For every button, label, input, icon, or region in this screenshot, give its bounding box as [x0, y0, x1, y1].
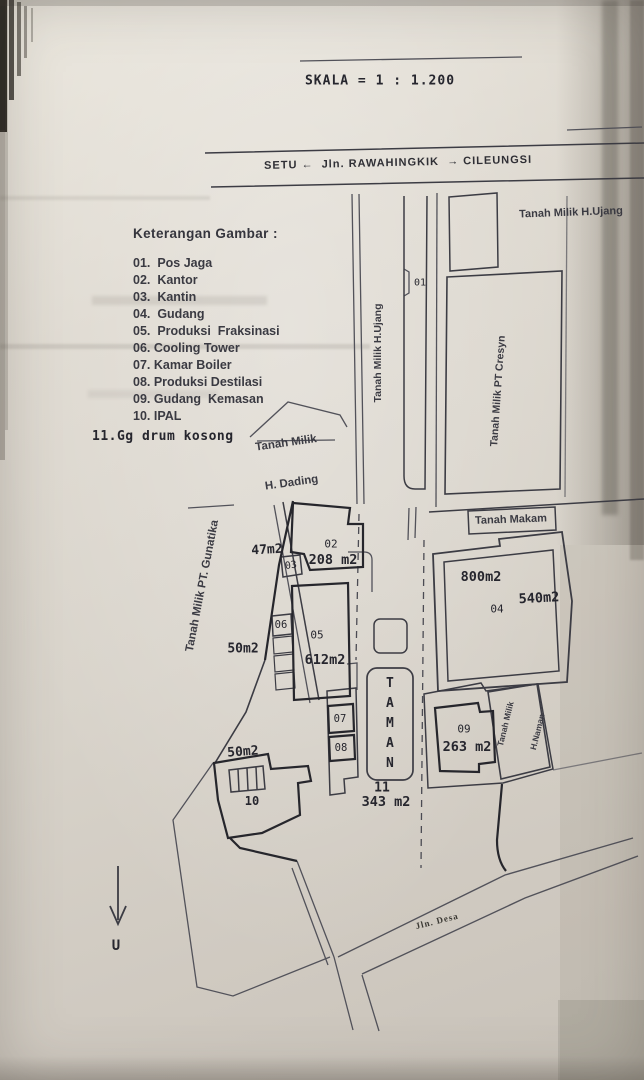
area-50m2-lower: 50m2 [227, 744, 259, 761]
inner-road-edge [436, 193, 437, 507]
right-parcel-edge [565, 196, 567, 497]
legend-item-07: 07. Kamar Boiler [133, 357, 280, 374]
jln-desa-upper [338, 838, 633, 957]
arrow-left-icon: ← [301, 158, 313, 170]
parcel-07-number: 07 [334, 713, 347, 725]
area-47m2: 47m2 [251, 543, 283, 560]
area-343m2: 343 m2 [362, 795, 411, 811]
small-square-building [374, 619, 407, 653]
south-road-vertical [334, 957, 379, 1031]
neighbor-ujang-strip: Tanah Milik H.Ujang [372, 304, 384, 403]
area-263m2: 263 m2 [443, 740, 492, 756]
area-540m2: 540m2 [518, 590, 559, 608]
cresyn-north-rect [449, 193, 498, 271]
parcel-06-number: 06 [275, 619, 288, 631]
naman-line1: Tanah Milik [495, 701, 517, 748]
dash-west-of-taman [356, 514, 359, 660]
ipal-cells [229, 766, 265, 792]
dading-line1: Tanah Milik [255, 434, 318, 456]
legend-item-11: 11.Gg drum kosong [92, 430, 234, 445]
road-town-right: CILEUNGSI [463, 153, 532, 167]
area-50m2-upper: 50m2 [227, 643, 258, 658]
top-road-label: SETU ← Jln. RAWAHINGKIK → CILEUNGSI [247, 141, 532, 185]
legend-title: Keterangan Gambar : [133, 226, 280, 241]
taman-label: TAMAN [382, 676, 397, 776]
ujang-strip-boundary [352, 194, 364, 504]
gunatika-top-line [188, 505, 234, 508]
parcel-05-number: 05 [310, 630, 323, 643]
south-road-edge [292, 861, 334, 965]
neighbor-makam: Tanah Makam [475, 512, 547, 527]
parcel-04-number: 04 [490, 604, 503, 617]
area-208m2: 208 m2 [309, 553, 358, 569]
legend-item-03: 03. Kantin [133, 289, 280, 306]
parcel-03-number: 03 [284, 559, 298, 572]
makam-north-boundary [429, 499, 644, 512]
dading-line2: H. Dading [260, 473, 323, 495]
parcel-02-number: 02 [324, 539, 337, 552]
legend-item-08: 08. Produksi Destilasi [133, 374, 280, 391]
thin-lines [173, 57, 642, 1031]
top-right-edge-line [567, 127, 642, 130]
scale-text: SKALA = 1 : 1.200 [305, 75, 455, 90]
area-800m2: 800m2 [461, 570, 502, 586]
legend: Keterangan Gambar : 01. Pos Jaga 02. Kan… [133, 226, 280, 425]
parcel-10-number: 10 [245, 795, 259, 809]
naman-line2: H.Naman [527, 709, 549, 756]
road-connectors [408, 507, 416, 540]
parcel-01-number: 01 [414, 277, 426, 289]
cooling-cells [273, 636, 295, 690]
jln-desa-lower [362, 856, 638, 974]
parcel-09-number: 09 [457, 724, 470, 737]
legend-item-01: 01. Pos Jaga [133, 255, 280, 272]
south-heavy-segment [230, 838, 297, 861]
scanned-site-plan-page: SKALA = 1 : 1.200 SETU ← Jln. RAWAHINGKI… [0, 0, 644, 1080]
legend-item-02: 02. Kantor [133, 272, 280, 289]
arrow-right-icon: → [447, 155, 459, 167]
east-boundary [553, 753, 642, 770]
legend-item-06: 06. Cooling Tower [133, 340, 280, 357]
area-612m2: 612m2 [305, 653, 346, 669]
scale-underline [300, 57, 522, 61]
southeast-heavy-boundary [497, 784, 506, 871]
legend-item-05: 05. Produksi Fraksinasi [133, 323, 280, 340]
parcel-08-number: 08 [335, 742, 348, 754]
north-arrow-icon [110, 866, 126, 924]
legend-item-04: 04. Gudang [133, 306, 280, 323]
road-town-left: SETU [264, 159, 298, 172]
north-label: U [112, 938, 120, 954]
dash-center-road [421, 540, 424, 868]
road-name: Jln. RAWAHINGKIK [321, 156, 439, 171]
parcel-01-strip [404, 196, 427, 489]
legend-item-09: 09. Gudang Kemasan [133, 391, 280, 408]
